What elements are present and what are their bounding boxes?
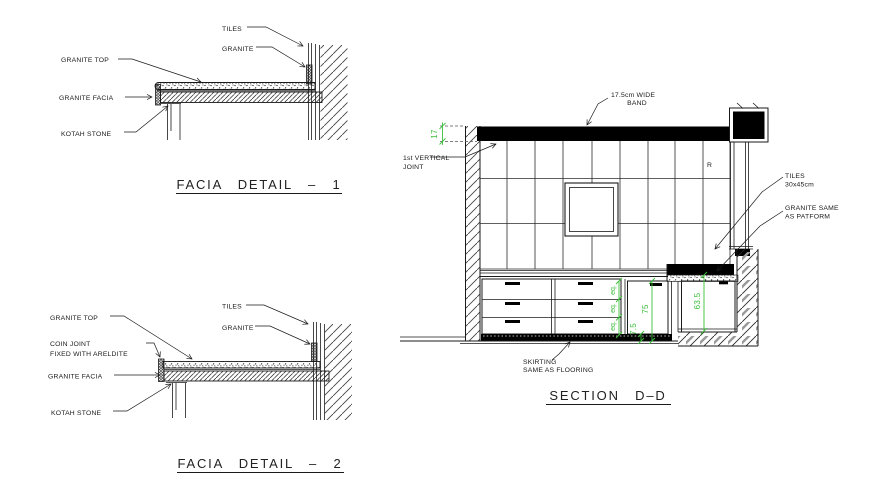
label-tiles-1: TILES <box>785 173 805 180</box>
wide-band <box>477 127 730 142</box>
wall-tile-lines <box>309 43 320 140</box>
leader-line <box>247 27 303 46</box>
granite-edge-piece <box>307 65 313 84</box>
label-wide-band-2: BAND <box>627 100 647 107</box>
dim-eq: eq. <box>610 321 617 331</box>
counter-top <box>480 271 668 277</box>
leader-line <box>146 343 160 357</box>
facia-detail-2: GRANITE TOP COIN JOINT FIXED WITH ARELDI… <box>48 304 352 473</box>
kotah-stone-support <box>166 383 187 419</box>
label-coin-joint-1: COIN JOINT <box>50 341 91 348</box>
label-granite-top: GRANITE TOP <box>50 315 98 322</box>
label-tiles: TILES <box>222 304 242 311</box>
leader-line <box>552 342 570 360</box>
wall-niche-outer <box>565 183 618 236</box>
label-granite-facia: GRANITE FACIA <box>48 374 103 381</box>
drawer-handle <box>578 302 593 305</box>
facia-end-cap <box>156 85 161 106</box>
leader-line <box>124 106 168 132</box>
leader-line <box>246 305 308 324</box>
leader-line <box>715 177 783 249</box>
leader-line <box>118 59 201 82</box>
label-granite: GRANITE <box>222 46 254 53</box>
dim-75: 75 <box>641 304 650 314</box>
cad-drawing-canvas: TILES GRANITE GRANITE TOP GRANITE FACIA … <box>0 0 870 498</box>
granite-facia-slab <box>164 371 329 381</box>
platform-cabinet <box>678 281 737 332</box>
skirting <box>481 334 672 341</box>
label-kotah-stone: KOTAH STONE <box>61 131 112 138</box>
label-wide-band-1: 17.5cm WIDE <box>611 92 655 99</box>
drawer-unit <box>482 279 625 334</box>
label-granite-facia: GRANITE FACIA <box>59 95 114 102</box>
leader-line <box>587 98 608 125</box>
section-title: SECTION D–D <box>549 388 666 403</box>
granite-facia-slab <box>161 92 323 103</box>
left-wall-hatch <box>466 126 480 341</box>
label-skirting-1: SKIRTING <box>523 359 557 366</box>
right-wall <box>678 249 758 346</box>
label-tile-r: R <box>707 162 712 169</box>
drawer-handle <box>505 302 520 305</box>
dim-7-5: 7.5 <box>629 323 638 335</box>
wall-hatch <box>321 45 348 140</box>
dim-eq: eq. <box>610 285 617 295</box>
platform-granite-top <box>667 264 734 275</box>
granite-edge-piece <box>312 343 318 362</box>
leader-line <box>256 47 305 67</box>
drawer-handle <box>505 282 520 285</box>
dim-eq: eq. <box>610 303 617 313</box>
coin-joint-piece <box>159 359 165 382</box>
label-vertical-joint-2: JOINT <box>403 164 424 171</box>
label-kotah-stone: KOTAH STONE <box>51 410 102 417</box>
label-coin-joint-2: FIXED WITH ARELDITE <box>50 351 128 358</box>
facia-detail-1: TILES GRANITE GRANITE TOP GRANITE FACIA … <box>59 26 348 194</box>
label-granite: GRANITE <box>222 325 254 332</box>
return-wall-tiles <box>729 142 753 256</box>
label-granite-top: GRANITE TOP <box>61 57 109 64</box>
beam-box <box>730 103 769 142</box>
cad-drawing: TILES GRANITE GRANITE TOP GRANITE FACIA … <box>0 0 870 498</box>
dim-band-height: 17 <box>430 129 439 139</box>
detail-1-title: FACIA DETAIL – 1 <box>176 177 341 192</box>
drawer-handle <box>505 320 520 323</box>
leader-line <box>113 384 171 411</box>
cabinet-handle <box>719 282 728 285</box>
leader-line <box>255 326 310 344</box>
label-vertical-joint-1: 1st VERTICAL <box>403 155 449 162</box>
label-tiles-2: 30x45cm <box>785 182 814 189</box>
eq-dimension-chain: eq. eq. eq. <box>610 278 622 338</box>
label-granite-platform-1: GRANITE SAME <box>785 205 839 212</box>
label-granite-platform-2: AS PATFORM <box>785 214 830 221</box>
granite-top-slab <box>155 83 315 90</box>
label-skirting-2: SAME AS FLOORING <box>523 367 593 374</box>
label-tiles: TILES <box>222 26 242 33</box>
drawer-handle <box>578 282 593 285</box>
section-d-d: R 17 <box>400 92 839 405</box>
dim-63-5: 63.5 <box>693 292 702 309</box>
drawer-handle <box>578 320 593 323</box>
granite-top-slab <box>163 362 320 369</box>
detail-2-title: FACIA DETAIL – 2 <box>177 456 342 471</box>
